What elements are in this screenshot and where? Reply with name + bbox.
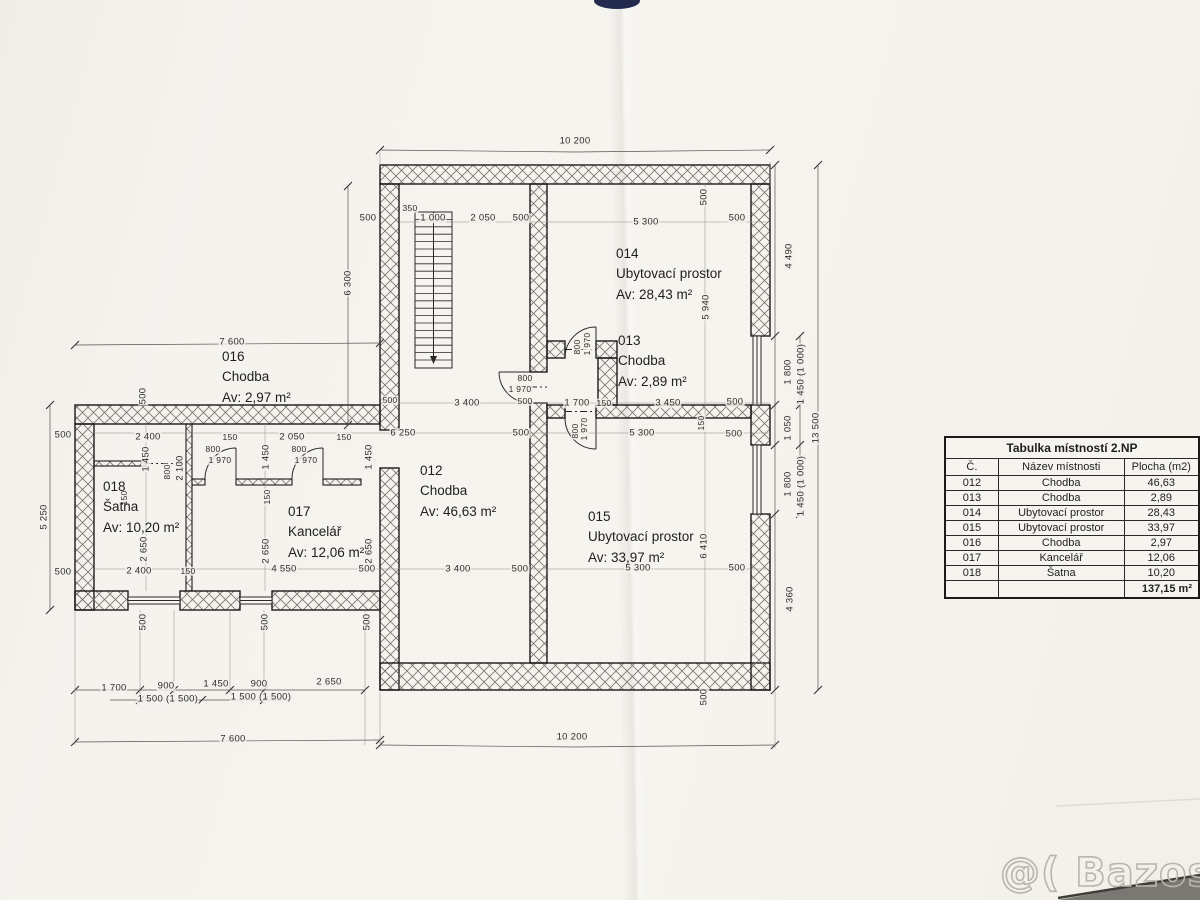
dimension-label: 500 (138, 387, 148, 406)
dimension-label: 1 700 (563, 398, 590, 408)
dimension-label: 1 800 (783, 470, 793, 497)
dimension-label: 1 450 (1 000) (796, 455, 806, 517)
col-header-number: Č. (945, 459, 998, 476)
dimension-label: 1 700 (100, 683, 127, 693)
dimension-label: 500 (516, 397, 533, 406)
dimension-label: 500 (512, 213, 531, 223)
table-row: 013Chodba2,89 (945, 491, 1199, 506)
dimension-label: 500 (362, 613, 372, 632)
room-label-018: 018ŠatnaAv: 10,20 m² (103, 477, 179, 538)
photographed-floor-plan-sheet: @( Bazos.cz 10 2005003501 0002 0505005 3… (0, 0, 1200, 900)
table-row: 018Šatna10,20 (945, 566, 1199, 581)
dimension-label: 6 300 (343, 269, 353, 296)
dimension-label: 2 050 (469, 213, 496, 223)
photo-top-object (594, 0, 640, 9)
table-row: 012Chodba46,63 (945, 476, 1199, 491)
table-header-row: Č. Název místnosti Plocha (m2) (945, 459, 1199, 476)
dimension-label: 1 450 (261, 443, 271, 470)
dimension-label: 2 650 (261, 537, 271, 564)
room-label-016: 016ChodbaAv: 2,97 m² (222, 347, 291, 408)
dimension-label: 1 970 (208, 456, 233, 465)
dimension-label: 350 (401, 204, 418, 213)
dimension-label: 150 (697, 414, 706, 431)
dimension-label: 10 200 (556, 732, 589, 742)
dimension-label: 150 (179, 567, 196, 576)
dimension-label: 10 200 (559, 136, 592, 146)
dimension-label: 2 650 (315, 677, 342, 687)
staircase (415, 212, 452, 368)
dimension-label: 500 (699, 688, 709, 707)
dimension-label: 3 400 (444, 564, 471, 574)
dimension-label: 1 970 (294, 456, 319, 465)
dimension-label: 500 (512, 428, 531, 438)
dimension-label: 1 970 (508, 385, 533, 394)
col-header-room-name: Název místnosti (998, 459, 1124, 476)
dimension-label: 4 550 (270, 564, 297, 574)
dimension-label: 4 360 (785, 585, 795, 612)
dimension-label: 500 (381, 396, 398, 405)
table-total-row: 137,15 m² (945, 581, 1199, 599)
dimension-label: 1 450 (364, 443, 374, 470)
room-label-012: 012ChodbaAv: 46,63 m² (420, 461, 496, 522)
dimension-label: 150 (221, 433, 238, 442)
dimension-label: 1 800 (783, 358, 793, 385)
room-label-015: 015Ubytovací prostorAv: 33,97 m² (588, 507, 694, 568)
dimension-label: 2 400 (125, 566, 152, 576)
dimension-label: 900 (250, 679, 269, 689)
dimension-label: 500 (725, 429, 744, 439)
dimension-label: 13 500 (811, 412, 821, 445)
room-label-013: 013ChodbaAv: 2,89 m² (618, 331, 687, 392)
dimension-label: 900 (157, 681, 176, 691)
dimension-label: 1 970 (583, 332, 592, 357)
dimension-label: 500 (260, 613, 270, 632)
dimension-label: 5 250 (39, 503, 49, 530)
dimension-label: 500 (54, 567, 73, 577)
dimension-label: 2 650 (364, 537, 374, 564)
total-area-value: 137,15 m² (1124, 581, 1199, 599)
dimension-label: 500 (726, 397, 745, 407)
dimension-label: 1 450 (141, 445, 151, 472)
col-header-area: Plocha (m2) (1124, 459, 1199, 476)
dimension-label: 6 250 (389, 428, 416, 438)
table-title: Tabulka místností 2.NP (945, 437, 1199, 459)
dimension-label: 500 (699, 188, 709, 207)
watermark: @( Bazos.cz (1000, 850, 1200, 896)
dimension-label: 500 (359, 213, 378, 223)
paper-bottom-edge (1056, 799, 1200, 806)
room-label-014: 014Ubytovací prostorAv: 28,43 m² (616, 244, 722, 305)
dimension-label: 500 (728, 563, 747, 573)
dimension-label: 150 (335, 433, 352, 442)
dimension-label: 3 450 (654, 398, 681, 408)
table-row: 017Kancelář12,06 (945, 551, 1199, 566)
table-row: 015Ubytovací prostor33,97 (945, 521, 1199, 536)
room-label-017: 017KancelářAv: 12,06 m² (288, 502, 364, 563)
dimension-label: 500 (511, 564, 530, 574)
dimension-label: 2 650 (139, 535, 149, 562)
dimension-label: 150 (595, 399, 612, 408)
dimension-label: 800 (204, 445, 221, 454)
dimension-label: 5 300 (628, 428, 655, 438)
dimension-label: 800 (290, 445, 307, 454)
dimension-label: 800 (573, 338, 582, 355)
table-row: 016Chodba2,97 (945, 536, 1199, 551)
dimension-label: 500 (138, 613, 148, 632)
dimension-label: 2 050 (278, 432, 305, 442)
dimension-label: 800 (516, 374, 533, 383)
dimension-label: 7 600 (219, 734, 246, 744)
dimension-label: 4 490 (784, 242, 794, 269)
dimension-label: 1 450 (1 000) (796, 343, 806, 405)
table-row: 014Ubytovací prostor28,43 (945, 506, 1199, 521)
dimension-label: 2 400 (134, 432, 161, 442)
dimension-label: 1 000 (419, 213, 446, 223)
dimension-label: 1 500 (1 500) (137, 694, 199, 704)
room-schedule-table: Tabulka místností 2.NP Č. Název místnost… (944, 436, 1200, 599)
dimension-label: 500 (728, 213, 747, 223)
dimension-label: 3 400 (453, 398, 480, 408)
dimension-label: 500 (54, 430, 73, 440)
dimension-label: 7 600 (218, 337, 245, 347)
dimension-label: 150 (263, 488, 272, 505)
dimension-label: 1 050 (783, 414, 793, 441)
dimension-label: 500 (358, 564, 377, 574)
dimension-label: 1 500 (1 500) (230, 692, 292, 702)
dimension-label: 6 410 (699, 532, 709, 559)
dimension-label: 5 300 (632, 217, 659, 227)
dimension-label: 1 450 (202, 679, 229, 689)
dimension-label: 1 970 (580, 417, 589, 442)
